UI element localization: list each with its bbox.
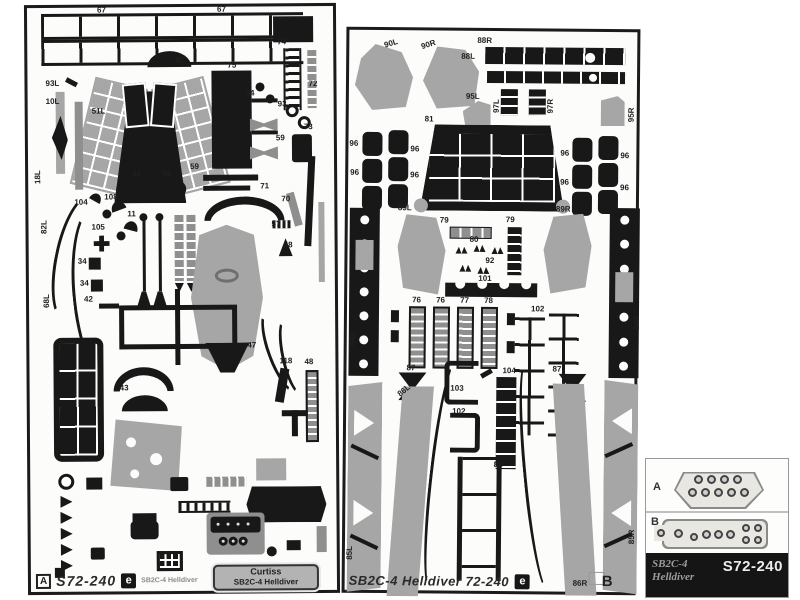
part-number-label: 87 bbox=[552, 366, 561, 374]
part-number-label: 91 bbox=[175, 57, 184, 65]
part-number-label: 79 bbox=[506, 216, 515, 224]
pe-part bbox=[317, 526, 327, 552]
part-number-label: 58 bbox=[284, 241, 293, 249]
product-photo: 6767917472759493735959929293L10L51L18L82… bbox=[0, 0, 800, 600]
part-number-label: 93 bbox=[278, 100, 287, 108]
pe-part bbox=[174, 215, 183, 281]
pe-part bbox=[126, 437, 136, 447]
pe-part bbox=[124, 220, 140, 232]
pe-part bbox=[250, 146, 278, 159]
pe-part bbox=[362, 159, 382, 183]
pe-part bbox=[170, 477, 188, 491]
pe-part bbox=[52, 116, 68, 160]
pe-part bbox=[701, 488, 710, 497]
pe-part bbox=[186, 215, 195, 281]
pe-part bbox=[491, 247, 503, 254]
pe-part bbox=[521, 279, 531, 289]
part-number-label: 74 bbox=[277, 38, 286, 46]
pe-part bbox=[234, 520, 243, 529]
pe-part bbox=[391, 330, 399, 342]
pe-part bbox=[408, 306, 426, 368]
film-row-b-letter: B bbox=[651, 516, 659, 528]
pe-part bbox=[603, 380, 639, 594]
part-number-label: 72 bbox=[308, 80, 317, 88]
pe-part bbox=[615, 272, 633, 302]
part-hole bbox=[359, 311, 368, 320]
pe-part bbox=[572, 165, 592, 189]
pe-part bbox=[543, 213, 592, 293]
part-number-label: 67 bbox=[97, 7, 106, 15]
part-hole bbox=[619, 361, 628, 370]
part-number-label: 96 bbox=[620, 152, 629, 160]
pe-part bbox=[219, 537, 228, 546]
eduard-logo-icon: e bbox=[121, 573, 136, 588]
pe-part bbox=[362, 132, 382, 156]
pe-part bbox=[158, 219, 162, 291]
pe-part bbox=[742, 524, 750, 532]
pe-part bbox=[142, 219, 146, 291]
pe-part bbox=[388, 157, 408, 181]
pe-part bbox=[397, 214, 446, 294]
product-title-line1: SB2C-4 bbox=[652, 558, 694, 571]
pe-part bbox=[733, 475, 742, 484]
part-number-label: 92 bbox=[162, 170, 171, 178]
pe-part bbox=[203, 174, 258, 180]
pe-part bbox=[501, 89, 518, 115]
part-hole bbox=[619, 337, 628, 346]
part-number-label: 96 bbox=[410, 145, 419, 153]
pe-part bbox=[178, 501, 230, 513]
part-number-label: 94 bbox=[246, 89, 255, 97]
pe-part bbox=[598, 163, 618, 187]
pe-part bbox=[292, 410, 298, 436]
part-number-label: 77 bbox=[460, 297, 469, 305]
part-number-label: 95L bbox=[466, 93, 480, 101]
sheet-a-letter: A bbox=[36, 573, 51, 588]
part-number-label: 51L bbox=[92, 108, 106, 116]
pe-part bbox=[742, 536, 750, 544]
pe-part bbox=[690, 533, 698, 541]
pe-sheet-a-parts: 6767917472759493735959929293L10L51L18L82… bbox=[27, 6, 337, 592]
part-hole bbox=[360, 287, 369, 296]
pe-part bbox=[255, 82, 264, 91]
pe-part bbox=[601, 96, 625, 126]
part-number-label: 88R bbox=[477, 37, 492, 45]
pe-part bbox=[485, 47, 625, 65]
part-number-label: 90L bbox=[383, 38, 399, 50]
part-number-label: 89L bbox=[398, 204, 412, 212]
pe-part bbox=[432, 306, 450, 368]
pe-part bbox=[499, 279, 509, 289]
pe-part bbox=[456, 307, 474, 369]
pe-part bbox=[134, 181, 150, 197]
part-number-label: 34 bbox=[78, 258, 87, 266]
sheet-a-code: S72-240 bbox=[56, 572, 116, 588]
pe-part bbox=[99, 303, 119, 308]
pe-part bbox=[727, 488, 736, 497]
part-number-label: 10L bbox=[46, 98, 60, 106]
part-number-label: 70 bbox=[281, 195, 290, 203]
pe-part bbox=[480, 307, 498, 369]
pe-sheet-b: 90L90R88L88R97L97R95L95R8196969696969696… bbox=[342, 27, 641, 596]
name-plate-line2: SB2C-4 Helldiver bbox=[215, 577, 317, 587]
part-number-label: 76 bbox=[436, 297, 445, 305]
pe-part bbox=[480, 368, 493, 378]
part-number-label: 76 bbox=[412, 296, 421, 304]
pe-part bbox=[362, 186, 382, 210]
pe-part bbox=[214, 520, 223, 529]
pe-part bbox=[117, 231, 126, 240]
pe-part bbox=[130, 469, 139, 478]
part-number-label: 103 bbox=[450, 385, 463, 393]
pe-part bbox=[457, 457, 502, 581]
pe-part bbox=[455, 279, 465, 289]
name-plate-part: Curtiss SB2C-4 Helldiver bbox=[213, 564, 319, 591]
part-number-label: 97L bbox=[493, 99, 501, 113]
pe-part bbox=[304, 156, 315, 246]
pe-part bbox=[86, 478, 102, 490]
pe-sheet-b-parts: 90L90R88L88R97L97R95L95R8196969696969696… bbox=[345, 30, 638, 592]
pe-part bbox=[75, 102, 84, 190]
part-number-label: 81 bbox=[425, 115, 434, 123]
part-number-label: 92 bbox=[132, 170, 141, 178]
pe-part bbox=[60, 496, 72, 508]
part-number-label: 95R bbox=[628, 107, 636, 122]
pe-part bbox=[229, 537, 238, 546]
part-number-label: 118 bbox=[279, 357, 292, 365]
pe-part bbox=[150, 82, 177, 128]
pe-part bbox=[507, 227, 521, 275]
pe-part bbox=[355, 240, 373, 270]
pe-part bbox=[572, 138, 592, 162]
part-number-label: 88L bbox=[461, 53, 475, 61]
pe-part bbox=[754, 536, 762, 544]
pe-part bbox=[224, 520, 233, 529]
sheet-a-footer: A S72-240 e SB2C-4 Helldiver bbox=[36, 572, 198, 589]
pe-part bbox=[348, 208, 379, 376]
pe-part bbox=[41, 12, 303, 40]
part-number-label: 86R bbox=[573, 580, 588, 588]
pe-part bbox=[702, 530, 711, 539]
pe-part bbox=[355, 44, 414, 111]
part-number-label: 102 bbox=[452, 408, 465, 416]
part-number-label: 96 bbox=[410, 171, 419, 179]
part-number-label: 68L bbox=[43, 294, 51, 308]
pe-part bbox=[572, 192, 592, 216]
pe-part bbox=[286, 104, 299, 117]
part-number-label: 104 bbox=[502, 367, 515, 375]
pe-part bbox=[175, 289, 181, 365]
pe-part bbox=[754, 524, 762, 532]
part-number-label: 78 bbox=[484, 297, 493, 305]
part-hole bbox=[359, 359, 368, 368]
pe-part bbox=[455, 247, 467, 254]
pe-part bbox=[152, 181, 168, 197]
part-number-label: 108 bbox=[104, 193, 117, 201]
pe-part bbox=[726, 530, 735, 539]
pe-part bbox=[347, 382, 383, 592]
part-number-label: 96 bbox=[620, 184, 629, 192]
pe-part bbox=[61, 528, 73, 540]
pe-part bbox=[150, 453, 162, 465]
part-number-label: 43 bbox=[120, 384, 129, 392]
part-hole bbox=[359, 335, 368, 344]
pe-part bbox=[740, 488, 749, 497]
pe-part bbox=[211, 71, 252, 169]
pe-part bbox=[89, 258, 101, 270]
pe-part bbox=[688, 488, 697, 497]
pe-part bbox=[61, 544, 73, 556]
sheet-b-footer: SB2C-4 Helldiver 72-240 e bbox=[349, 573, 530, 590]
part-number-label: 34 bbox=[80, 280, 89, 288]
part-number-label: 71 bbox=[260, 182, 269, 190]
pe-part bbox=[122, 395, 168, 411]
pe-part bbox=[287, 540, 301, 550]
part-number-label: 87 bbox=[406, 364, 415, 372]
part-number-label: 96 bbox=[560, 179, 569, 187]
pe-part bbox=[267, 546, 277, 556]
pe-part bbox=[414, 198, 428, 212]
part-number-label: 59 bbox=[276, 134, 285, 142]
part-number-label: 48 bbox=[304, 358, 313, 366]
part-hole bbox=[620, 240, 629, 249]
pe-part bbox=[646, 511, 788, 513]
pe-part bbox=[65, 77, 78, 87]
pe-part bbox=[391, 310, 399, 322]
part-number-label: 97R bbox=[547, 99, 555, 114]
product-code: S72-240 bbox=[723, 558, 783, 575]
pe-part bbox=[714, 530, 723, 539]
pe-part bbox=[589, 74, 597, 82]
part-number-label: 42 bbox=[84, 296, 93, 304]
pe-part bbox=[91, 280, 103, 292]
pe-part bbox=[102, 209, 111, 218]
pe-part bbox=[388, 130, 408, 154]
part-number-label: 80 bbox=[470, 236, 479, 244]
pe-part bbox=[53, 338, 104, 462]
part-number-label: 90R bbox=[420, 39, 436, 51]
pe-part bbox=[598, 136, 618, 160]
pe-sheet-a: 6767917472759493735959929293L10L51L18L82… bbox=[24, 3, 340, 595]
sheet-b-title-code: SB2C-4 Helldiver 72-240 bbox=[349, 573, 509, 589]
pe-part bbox=[318, 202, 325, 282]
part-number-label: 18L bbox=[34, 170, 42, 184]
eduard-logo-icon: e bbox=[515, 574, 530, 589]
pe-part bbox=[91, 548, 105, 560]
part-number-label: 11 bbox=[127, 210, 136, 218]
pe-part bbox=[720, 475, 729, 484]
part-hole bbox=[360, 215, 369, 224]
part-number-label: 67 bbox=[217, 6, 226, 14]
part-number-label: 92 bbox=[485, 257, 494, 265]
part-number-label: 75 bbox=[227, 62, 236, 70]
pe-part bbox=[420, 124, 565, 211]
pe-part bbox=[239, 537, 248, 546]
part-number-label: 85L bbox=[346, 546, 354, 560]
part-number-label: 96 bbox=[349, 140, 358, 148]
pe-part bbox=[305, 370, 319, 442]
pe-part bbox=[266, 94, 275, 103]
pe-part bbox=[122, 82, 150, 128]
part-number-label: 47 bbox=[247, 341, 256, 349]
pe-part bbox=[60, 512, 72, 524]
name-plate-line1: Curtiss bbox=[215, 566, 317, 578]
pe-part bbox=[203, 186, 250, 191]
film-row-a-letter: A bbox=[653, 481, 661, 493]
pe-part bbox=[474, 245, 486, 252]
part-number-label: 102 bbox=[531, 305, 544, 313]
pe-part bbox=[206, 477, 246, 487]
pe-part bbox=[694, 475, 703, 484]
pe-part bbox=[549, 384, 599, 596]
part-number-label: 79 bbox=[440, 217, 449, 225]
part-number-label: 101 bbox=[478, 275, 491, 283]
part-number-label: 82L bbox=[40, 220, 48, 234]
part-number-label: 96 bbox=[560, 150, 569, 158]
film-preview-card: A B SB2C-4 Helldiver S72-240 bbox=[645, 458, 789, 598]
pe-part bbox=[657, 529, 665, 537]
pe-part bbox=[507, 341, 515, 353]
part-number-label: 84R bbox=[633, 316, 641, 331]
part-number-label: 84L bbox=[349, 332, 357, 346]
part-hole bbox=[620, 216, 629, 225]
pe-part bbox=[131, 521, 159, 539]
part-number-label: 105 bbox=[91, 224, 104, 232]
part-number-label: 59 bbox=[190, 163, 199, 171]
pe-part bbox=[714, 488, 723, 497]
pe-part bbox=[585, 53, 595, 63]
part-number-label: 96 bbox=[350, 169, 359, 177]
pe-part bbox=[215, 269, 239, 283]
pe-part bbox=[252, 130, 278, 134]
pe-part bbox=[507, 313, 515, 325]
part-number-label: 93L bbox=[45, 80, 59, 88]
pe-part bbox=[116, 181, 132, 197]
pe-part bbox=[707, 475, 716, 484]
pe-part bbox=[58, 474, 74, 490]
pe-part bbox=[170, 181, 186, 197]
sheet-b-letter: B bbox=[602, 573, 613, 590]
pe-part bbox=[674, 529, 683, 538]
part-number-label: 82 bbox=[494, 461, 503, 469]
pe-part bbox=[256, 458, 286, 480]
part-hole bbox=[619, 313, 628, 322]
pe-part bbox=[244, 520, 253, 529]
sheet-a-title-small: SB2C-4 Helldiver bbox=[141, 576, 197, 583]
part-number-label: 89R bbox=[556, 206, 571, 214]
product-title-line2: Helldiver bbox=[652, 571, 694, 584]
part-number-label: 57 bbox=[271, 220, 280, 228]
pe-part bbox=[529, 89, 546, 115]
part-number-label: 85R bbox=[628, 530, 636, 545]
pe-part bbox=[157, 551, 183, 571]
part-number-label: 104 bbox=[74, 199, 87, 207]
product-label-band: SB2C-4 Helldiver S72-240 bbox=[646, 553, 788, 597]
product-title: SB2C-4 Helldiver bbox=[652, 558, 694, 584]
pe-part bbox=[487, 71, 625, 84]
pe-part bbox=[459, 265, 471, 272]
part-number-label: 73 bbox=[304, 123, 313, 131]
pe-part bbox=[496, 377, 517, 469]
